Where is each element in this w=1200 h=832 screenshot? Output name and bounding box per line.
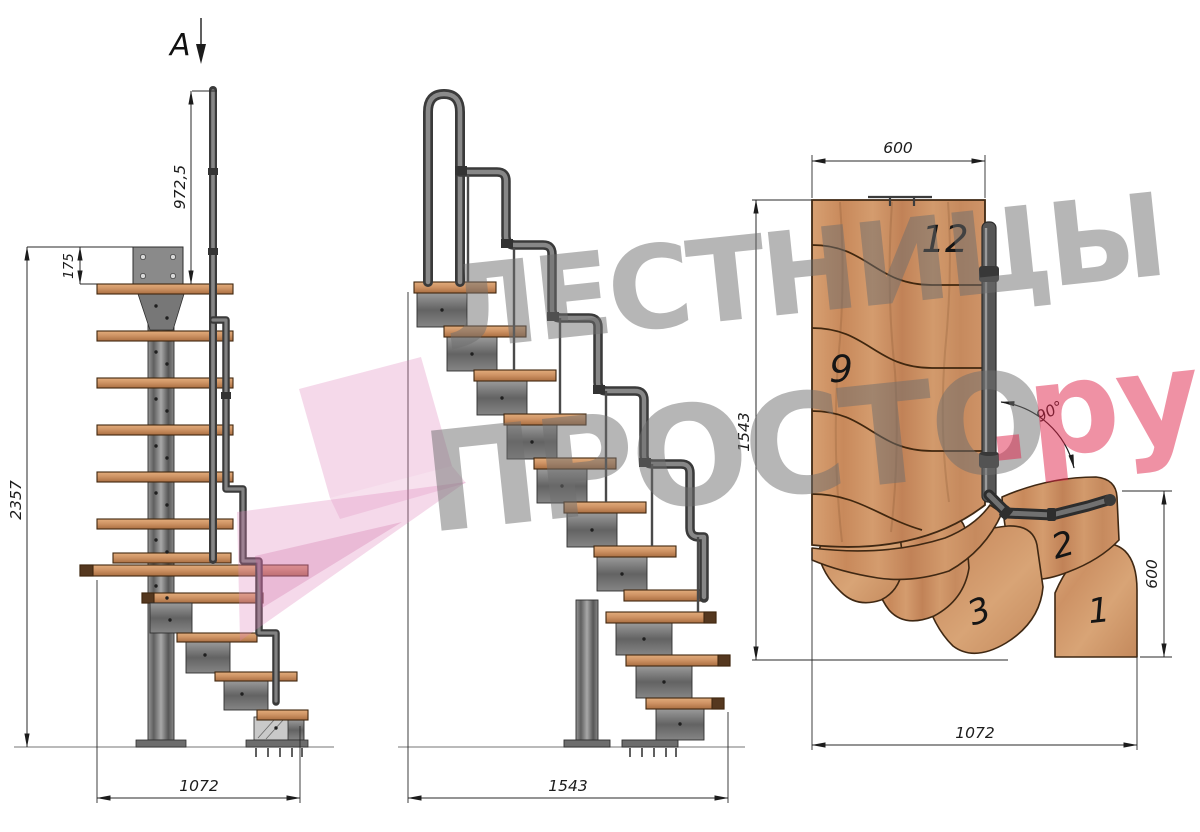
dim-front-length-value: 1543: [548, 777, 587, 795]
column-base-plate: [564, 740, 610, 747]
tread: [594, 546, 676, 557]
step-label-1: 1: [1086, 590, 1112, 632]
tread: [624, 590, 706, 601]
rail-clamp: [221, 392, 231, 399]
section-label: A: [168, 28, 191, 63]
tread-end-cap: [718, 655, 730, 666]
dim-plan-length-value: 1072: [955, 724, 994, 742]
rail-clamp: [455, 166, 467, 175]
support-column: [576, 600, 598, 740]
section-arrow-icon: [196, 44, 206, 64]
tread-edge: [215, 672, 297, 681]
anchor-bolts: [256, 748, 302, 757]
dim-plate-offset-value: 175: [61, 253, 77, 279]
base-plate: [622, 740, 678, 747]
side-view: A: [7, 18, 334, 803]
watermark-suffix: .ру: [974, 322, 1200, 493]
base-plate: [246, 740, 308, 747]
dim-handrail-height-value: 972,5: [171, 165, 189, 209]
staircase-drawing: A: [0, 0, 1200, 832]
tread-end-cap: [142, 593, 154, 603]
dim-plan-top-width-value: 600: [883, 139, 913, 157]
rail-joint: [1047, 508, 1056, 521]
section-marker: A: [168, 18, 206, 64]
dim-side-length-value: 1072: [179, 777, 218, 795]
mounting-plate: [133, 247, 183, 285]
dim-plan-entry-width-value: 600: [1143, 559, 1161, 589]
step-module: [150, 603, 192, 633]
tread-edge: [257, 710, 308, 720]
rail-clamp: [208, 248, 218, 255]
tread-end-cap: [712, 698, 724, 709]
dim-total-height: 2357: [7, 247, 27, 747]
dim-total-height-value: 2357: [7, 480, 25, 520]
center-column: [148, 284, 174, 740]
tread: [606, 612, 716, 623]
dim-plate-offset: 175: [27, 247, 133, 284]
step-module: [186, 642, 230, 673]
step-module: [224, 681, 268, 710]
anchor-bolts: [630, 748, 676, 757]
tread-end-cap: [80, 565, 93, 576]
tread-end-cap: [704, 612, 716, 623]
rail-clamp: [208, 168, 218, 175]
rail-end-cap: [1104, 494, 1116, 506]
column-base-plate: [136, 740, 186, 747]
tread: [626, 655, 730, 666]
plate-gusset: [138, 294, 184, 330]
drawing-sheet: A: [0, 0, 1200, 832]
